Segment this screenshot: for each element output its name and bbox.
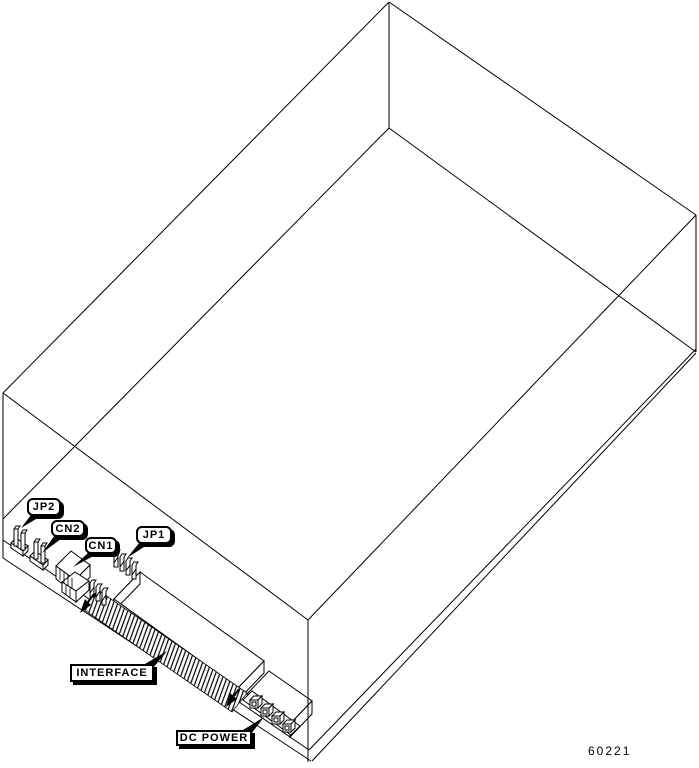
drive-isometric-drawing xyxy=(0,0,699,768)
callout-jp2: JP2 xyxy=(27,498,61,516)
callout-cn1: CN1 xyxy=(85,537,117,554)
cn2-header-pins xyxy=(30,539,48,570)
leader-jp2 xyxy=(21,515,41,528)
pcb-edge-strip xyxy=(3,349,696,761)
leader-jp1 xyxy=(127,542,150,558)
callout-cn2: CN2 xyxy=(51,520,85,537)
figure-number: 60221 xyxy=(588,744,631,758)
technical-drawing-page: JP2 CN2 CN1 JP1 INTERFACE DC POWER 60221 xyxy=(0,0,699,768)
chassis-wireframe xyxy=(3,2,696,620)
callout-jp1: JP1 xyxy=(136,526,172,544)
callout-dc-power: DC POWER xyxy=(176,730,252,746)
jp2-header-pins xyxy=(11,526,28,556)
callout-interface: INTERFACE xyxy=(70,664,154,682)
